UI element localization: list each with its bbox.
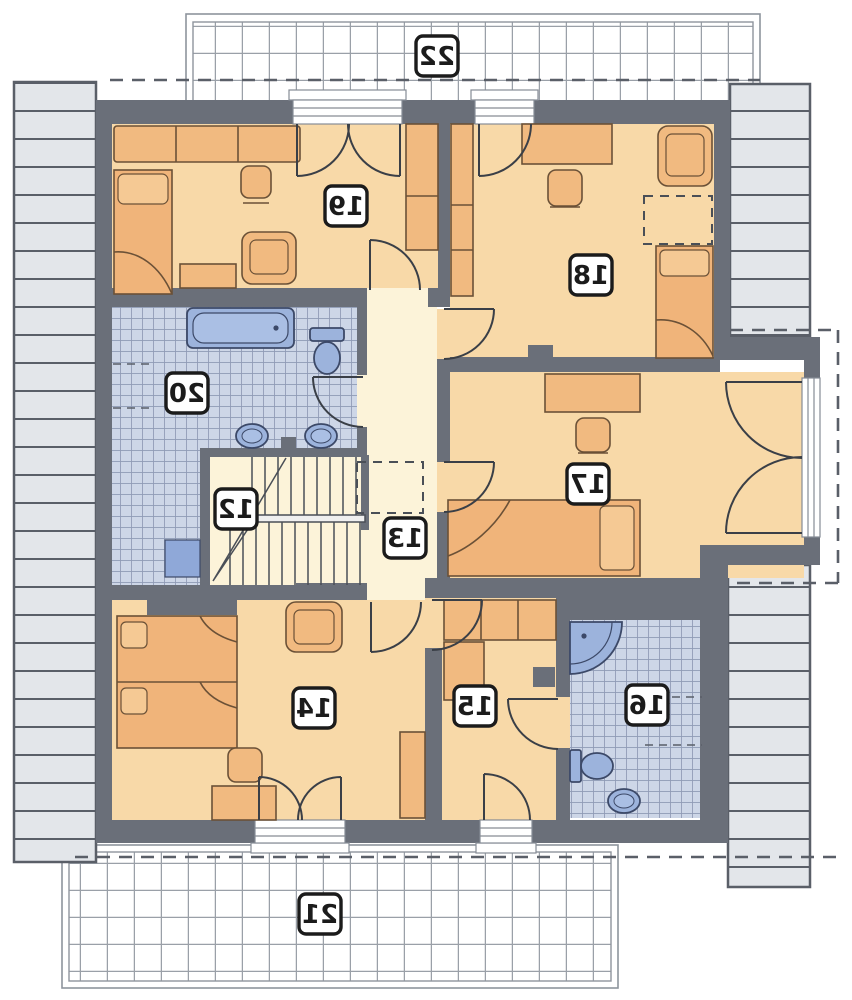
sink-left-basin bbox=[242, 429, 262, 443]
room-number: 20 bbox=[169, 379, 205, 409]
wardrobe bbox=[451, 124, 473, 296]
room-label-20: 20 bbox=[166, 373, 208, 413]
roof-strip-right-bottom bbox=[728, 565, 810, 887]
french-door-14-terrace bbox=[251, 820, 349, 853]
wardrobe bbox=[406, 124, 438, 250]
wall-top bbox=[96, 100, 730, 124]
bed-pillow bbox=[118, 174, 168, 204]
wall-14-recess bbox=[147, 585, 237, 615]
room-number: 22 bbox=[419, 42, 455, 72]
room-label-21: 21 bbox=[299, 894, 341, 934]
floor-plan: 22 19 18 20 12 13 17 14 bbox=[0, 0, 852, 1000]
wall-dormer-bottom bbox=[700, 545, 820, 565]
desk-chair bbox=[548, 170, 582, 206]
opening-hall-14 bbox=[367, 578, 425, 600]
wardrobe bbox=[400, 732, 425, 818]
desk-chair bbox=[576, 418, 610, 452]
roof-strip-right-top bbox=[730, 84, 810, 337]
tv-bench bbox=[180, 264, 236, 288]
room-number: 13 bbox=[387, 524, 423, 554]
bed-pillow bbox=[600, 506, 634, 570]
toilet-16-tank bbox=[570, 750, 581, 782]
room-number: 21 bbox=[302, 900, 338, 930]
wall-17-15 bbox=[425, 578, 556, 598]
wall-12-left bbox=[200, 448, 210, 588]
room-label-12: 12 bbox=[215, 489, 257, 529]
chimney-15 bbox=[533, 667, 555, 687]
wardrobe-top bbox=[444, 600, 556, 640]
room-label-15: 15 bbox=[454, 686, 496, 726]
room-label-13: 13 bbox=[384, 518, 426, 558]
armchair-seat bbox=[294, 610, 334, 644]
wall-14-15-partition bbox=[425, 648, 442, 820]
wall-19-18-partition bbox=[438, 124, 450, 288]
desk-chair bbox=[241, 166, 271, 198]
wall-right-top bbox=[714, 100, 730, 340]
wall-hall-pier bbox=[428, 288, 450, 307]
opening-hall-18 bbox=[437, 309, 450, 359]
room-number: 18 bbox=[573, 261, 609, 291]
room-number: 12 bbox=[218, 495, 254, 525]
bed-pillow bbox=[121, 622, 147, 648]
toilet-20-bowl bbox=[314, 342, 340, 374]
door-18-terrace bbox=[471, 90, 538, 124]
door-15-terrace bbox=[476, 820, 536, 853]
wall-15-16-a bbox=[556, 598, 570, 697]
toilet-16-bowl bbox=[581, 753, 613, 779]
room-label-16: 16 bbox=[626, 685, 668, 725]
wall-hall-bottom bbox=[296, 583, 367, 600]
room-label-14: 14 bbox=[293, 688, 335, 728]
shower-drain bbox=[581, 633, 586, 638]
opening-hall-19 bbox=[367, 288, 428, 307]
sink-16-basin bbox=[614, 794, 634, 808]
armchair-seat bbox=[666, 134, 704, 176]
floor-plan-image: 22 19 18 20 12 13 17 14 bbox=[0, 0, 852, 1000]
wall-sink-nib bbox=[281, 437, 296, 457]
wall-dormer-top bbox=[714, 337, 820, 360]
room-label-22: 22 bbox=[416, 36, 458, 76]
wall-15-16-b bbox=[556, 748, 570, 820]
toilet-20-tank bbox=[310, 328, 344, 341]
chimney-18-17 bbox=[528, 345, 553, 372]
room-label-17: 17 bbox=[567, 464, 609, 504]
room-number: 16 bbox=[629, 691, 665, 721]
wall-18-17 bbox=[450, 357, 720, 372]
desk bbox=[545, 374, 640, 412]
bathtub-drain bbox=[273, 325, 278, 330]
opening-hall-20 bbox=[357, 375, 367, 427]
bath-mat bbox=[165, 540, 200, 577]
roof-strip-left bbox=[14, 82, 96, 862]
desk bbox=[522, 124, 612, 164]
desk bbox=[212, 786, 276, 820]
room-number: 15 bbox=[457, 692, 493, 722]
room-number: 14 bbox=[296, 694, 332, 724]
wall-left bbox=[96, 100, 112, 843]
wall-16-top bbox=[556, 578, 728, 620]
room-number: 17 bbox=[570, 470, 606, 500]
french-door-19-terrace bbox=[289, 90, 406, 124]
sink-right-basin bbox=[311, 429, 331, 443]
room-label-18: 18 bbox=[570, 255, 612, 295]
opening-14-15 bbox=[425, 598, 442, 648]
bed-pillow bbox=[660, 250, 709, 276]
armchair-seat bbox=[250, 240, 288, 274]
bed-pillow bbox=[121, 688, 147, 714]
room-number: 19 bbox=[328, 192, 364, 222]
sofa bbox=[114, 126, 300, 162]
wall-hall-right-a bbox=[437, 359, 450, 462]
opening-15-16 bbox=[556, 697, 570, 748]
wall-bottom bbox=[96, 820, 728, 843]
stair-handrail bbox=[252, 515, 365, 522]
room-label-19: 19 bbox=[325, 186, 367, 226]
desk-chair bbox=[228, 748, 262, 782]
french-door-17-balcony bbox=[802, 378, 820, 537]
